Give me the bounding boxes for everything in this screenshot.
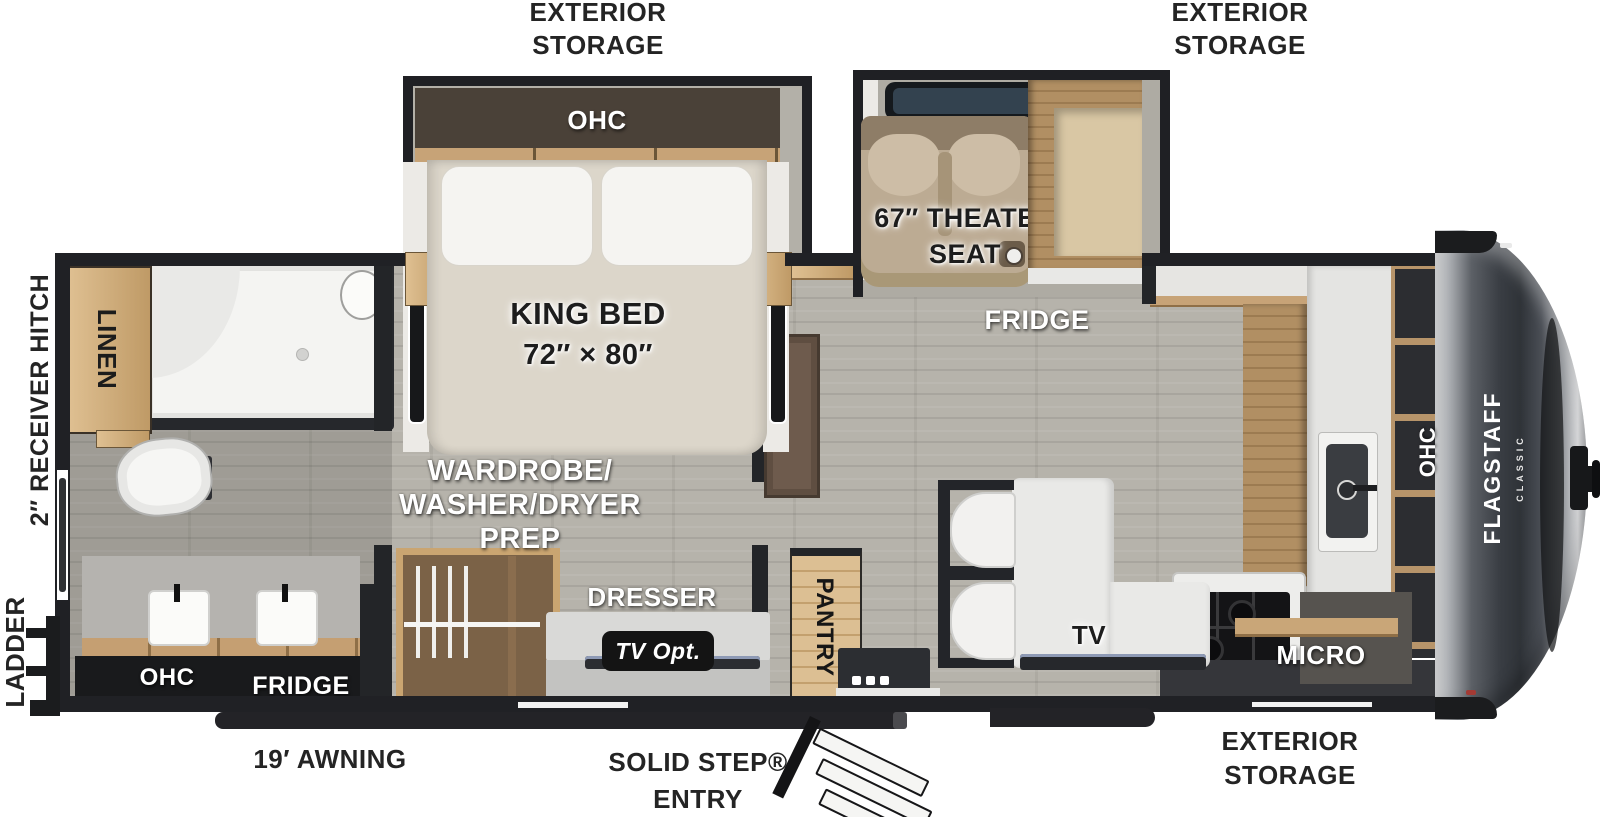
ext-storage-br-line2: STORAGE: [1140, 758, 1440, 792]
awning-label: 19′ AWNING: [180, 744, 480, 775]
ladder-foot: [30, 700, 60, 716]
pillow-right: [601, 166, 753, 266]
wardrobe-divider: [508, 556, 516, 698]
ext-storage-br-line1: EXTERIOR: [1140, 724, 1440, 758]
step-dot-3: [880, 676, 889, 685]
step-dot-2: [866, 676, 875, 685]
kitchen-tall-cabinet: [1243, 304, 1307, 586]
wardrobe-rod-2: [432, 566, 436, 658]
hitch-coupler-icon: [1592, 460, 1600, 498]
king-bed-label-1: KING BED: [438, 296, 738, 332]
wardrobe-label-3: PREP: [370, 523, 670, 556]
ext-storage-tr-line2: STORAGE: [1090, 29, 1390, 62]
wardrobe-pole: [404, 622, 540, 627]
rear-window: [59, 478, 66, 592]
step-dot-1: [852, 676, 861, 685]
linen-label: LINEN: [92, 274, 122, 424]
chassis-bar: [990, 708, 1155, 727]
booth-seat-2: [950, 582, 1016, 660]
ext-storage-tr-line1: EXTERIOR: [1090, 0, 1390, 29]
bedroom-window-right: [769, 300, 787, 424]
cap-bottom-corner: [1435, 697, 1497, 719]
tv-opt-label: TV Opt.: [615, 638, 700, 665]
vanity-ohc-label: OHC: [92, 664, 242, 692]
brand-name: FLAGSTAFF: [1479, 318, 1507, 618]
kitchen-faucet-handle: [1353, 485, 1377, 491]
tv-opt-badge: TV Opt.: [602, 631, 714, 671]
top-wall-mid: [785, 253, 860, 266]
cap-marker-top: [1500, 243, 1512, 248]
bottom-trim-2: [1252, 702, 1372, 707]
solid-step-line1: SOLID STEP®: [548, 744, 848, 781]
receiver-hitch-label: 2″ RECEIVER HITCH: [26, 235, 56, 565]
ext-storage-tl-line1: EXTERIOR: [448, 0, 748, 29]
faucet-left-icon: [174, 584, 180, 602]
fridge-top: [1054, 108, 1142, 256]
ext-storage-tl-line2: STORAGE: [448, 29, 748, 62]
wardrobe-rod-3: [448, 566, 452, 658]
door-threshold: [836, 688, 940, 696]
wardrobe: [396, 548, 560, 720]
dresser-label: DRESSER: [502, 582, 802, 613]
vanity-backsplash: [82, 556, 360, 644]
theater-cushion-right: [948, 134, 1020, 196]
exterior-storage-bottom-right: EXTERIOR STORAGE: [1140, 724, 1440, 792]
tv-label: TV: [1014, 620, 1164, 651]
king-bed-label-2: 72″ × 80″: [438, 339, 738, 372]
island-tv: [1020, 654, 1206, 670]
cap-window-streak: [1540, 318, 1564, 652]
micro-shelf: [1235, 618, 1398, 637]
bottom-wall: [55, 696, 1452, 712]
cap-marker-red: [1466, 690, 1476, 695]
kitchen-fridge-label: FRIDGE: [887, 305, 1187, 336]
booth-frame-side: [938, 480, 950, 668]
wardrobe-label-2: WASHER/DRYER: [370, 489, 670, 522]
exterior-storage-top-left: EXTERIOR STORAGE: [448, 0, 748, 62]
bedroom-ohc-label: OHC: [537, 105, 657, 136]
kitchen-wall-stub: [1142, 262, 1156, 304]
exterior-storage-top-right: EXTERIOR STORAGE: [1090, 0, 1390, 62]
ladder-label: LADDER: [0, 582, 28, 722]
top-wall-front: [1142, 253, 1452, 266]
fridge-counter: [1028, 268, 1142, 284]
top-wall-rear: [55, 253, 405, 266]
bath-bedroom-wall-lower: [374, 545, 392, 696]
theater-cushion-left: [868, 134, 940, 196]
bath-bedroom-wall: [374, 253, 392, 431]
bottom-trim-1: [518, 702, 628, 708]
front-cap: [1435, 230, 1587, 720]
front-ohc-label: OHC: [1415, 397, 1441, 507]
micro-label: MICRO: [1171, 640, 1471, 671]
wardrobe-label-1: WARDROBE/: [370, 455, 670, 488]
solid-step-line2: ENTRY: [548, 781, 848, 817]
rv-floorplan: LINEN OHC FRIDGE DRESSER TV Opt. PANTRY: [0, 0, 1600, 817]
mid-wall-shelf: [792, 266, 853, 280]
faucet-right-icon: [282, 584, 288, 602]
wardrobe-rod-4: [464, 566, 468, 658]
shower-drain: [296, 348, 309, 361]
booth-seat-1: [950, 492, 1016, 568]
entry-mat: [838, 648, 930, 692]
awning-end-cap: [893, 712, 907, 729]
bedroom-window-left: [408, 300, 426, 424]
cap-top-corner: [1435, 231, 1497, 253]
solid-step-label: SOLID STEP® ENTRY: [548, 744, 848, 817]
pantry-label: PANTRY: [810, 552, 838, 702]
awning-roller: [215, 712, 903, 729]
brand-series: CLASSIC: [1515, 368, 1529, 568]
wardrobe-rod-1: [416, 566, 420, 658]
pillow-left: [441, 166, 593, 266]
